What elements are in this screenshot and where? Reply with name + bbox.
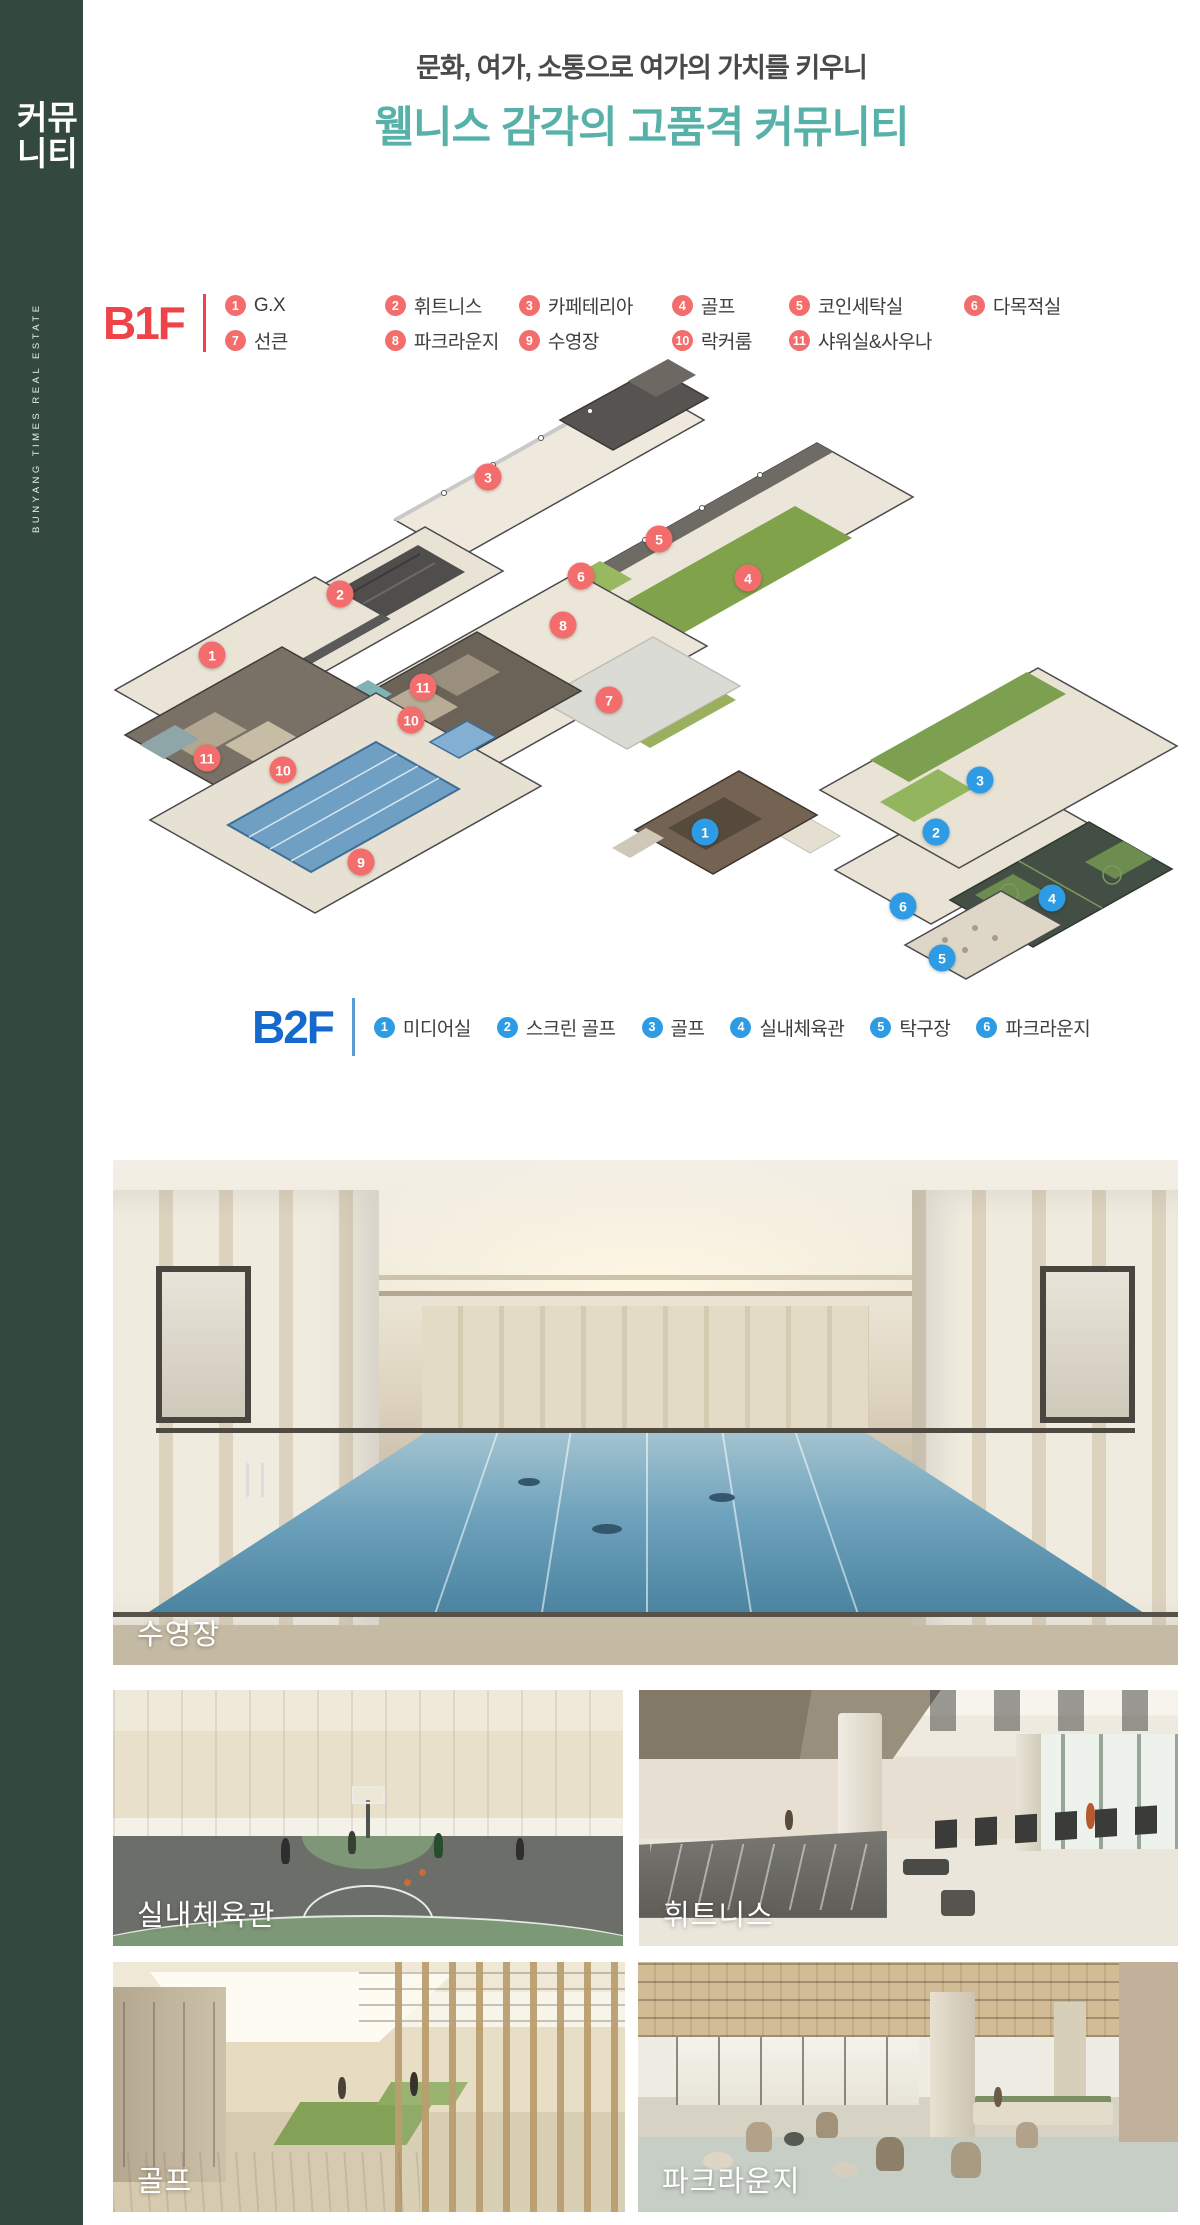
pool-far-edge bbox=[156, 1428, 1136, 1433]
fitness-wood-ceiling bbox=[639, 1690, 941, 1759]
legend-item: 5탁구장 bbox=[870, 1014, 950, 1041]
pool-left-mirror bbox=[156, 1266, 252, 1423]
pool-ladder bbox=[246, 1463, 264, 1497]
legend-item: 3골프 bbox=[642, 1014, 705, 1041]
legend-label: 파크라운지 bbox=[1005, 1014, 1090, 1041]
pool-near-edge bbox=[113, 1612, 1178, 1617]
player-figure bbox=[348, 1831, 356, 1854]
swimmer bbox=[518, 1478, 540, 1486]
plan-marker: 2 bbox=[923, 819, 950, 846]
pool-right-mirror bbox=[1040, 1266, 1136, 1423]
plan-marker: 3 bbox=[967, 767, 994, 794]
legend-item: 2스크린 골프 bbox=[497, 1014, 616, 1041]
plan-marker: 1 bbox=[199, 642, 226, 669]
weight-bench bbox=[941, 1890, 975, 1916]
legend-label: 골프 bbox=[671, 1014, 705, 1041]
legend-label: 미디어실 bbox=[403, 1014, 471, 1041]
b2f-floor-label: B2F bbox=[252, 1004, 333, 1050]
basketball bbox=[404, 1879, 411, 1886]
photo-label-indoor-gym: 실내체육관 bbox=[137, 1892, 275, 1934]
lounge-column bbox=[1054, 2002, 1086, 2117]
lounge-chair bbox=[816, 2112, 838, 2138]
lounge-chair bbox=[876, 2137, 904, 2171]
legend-number-badge: 4 bbox=[730, 1017, 751, 1038]
lounge-chair bbox=[1016, 2122, 1038, 2148]
legend-label: 실내체육관 bbox=[759, 1014, 844, 1041]
lounge-chair bbox=[951, 2142, 981, 2178]
photo-pool: 수영장 bbox=[113, 1160, 1178, 1665]
pool-back-wall bbox=[422, 1306, 869, 1432]
plan-marker: 6 bbox=[890, 893, 917, 920]
legend-number-badge: 3 bbox=[642, 1017, 663, 1038]
swimmer bbox=[592, 1524, 622, 1534]
photo-fitness: 휘트니스 bbox=[639, 1690, 1178, 1946]
photo-label-golf: 골프 bbox=[137, 2158, 192, 2200]
lounge-right-wall bbox=[1119, 1962, 1178, 2142]
lounge-pouf bbox=[832, 2162, 858, 2178]
legend-item: 4실내체육관 bbox=[730, 1014, 844, 1041]
basketball-backboard bbox=[352, 1786, 385, 1804]
person-figure bbox=[785, 1810, 793, 1830]
golf-locker-doors bbox=[123, 2002, 215, 2167]
plan-marker: 4 bbox=[735, 565, 762, 592]
lounge-table bbox=[784, 2132, 804, 2146]
plan-marker: 5 bbox=[646, 526, 673, 553]
photo-label-lounge: 파크라운지 bbox=[662, 2158, 800, 2200]
golfer-figure bbox=[410, 2072, 418, 2096]
plan-marker: 8 bbox=[550, 612, 577, 639]
lounge-column bbox=[930, 1992, 976, 2137]
plan-marker: 6 bbox=[568, 563, 595, 590]
player-figure bbox=[516, 1838, 524, 1860]
plan-marker: 10 bbox=[398, 707, 425, 734]
plan-marker: 11 bbox=[194, 745, 221, 772]
plan-marker: 10 bbox=[270, 757, 297, 784]
lounge-ceiling-beams bbox=[638, 1962, 1178, 2037]
runner-figure bbox=[1086, 1803, 1095, 1829]
fitness-ceiling-lights bbox=[930, 1690, 1178, 1731]
photo-indoor-gym: 실내체육관 bbox=[113, 1690, 623, 1946]
lounge-window-mullions bbox=[676, 2037, 919, 2105]
b2f-legend-divider bbox=[352, 998, 355, 1056]
lounge-planter bbox=[973, 2102, 1113, 2125]
photo-golf: 골프 bbox=[113, 1962, 625, 2212]
legend-item: 1미디어실 bbox=[374, 1014, 471, 1041]
plan-marker: 2 bbox=[327, 581, 354, 608]
legend-number-badge: 2 bbox=[497, 1017, 518, 1038]
weight-bench bbox=[903, 1859, 949, 1875]
lounge-chair bbox=[746, 2122, 772, 2152]
legend-item: 6파크라운지 bbox=[976, 1014, 1090, 1041]
legend-number-badge: 5 bbox=[870, 1017, 891, 1038]
legend-number-badge: 6 bbox=[976, 1017, 997, 1038]
plan-marker: 7 bbox=[596, 687, 623, 714]
legend-number-badge: 1 bbox=[374, 1017, 395, 1038]
photo-lounge: 파크라운지 bbox=[638, 1962, 1178, 2212]
legend-label: 탁구장 bbox=[899, 1014, 950, 1041]
photo-label-pool: 수영장 bbox=[137, 1611, 220, 1653]
legend-label: 스크린 골프 bbox=[526, 1014, 616, 1041]
basketball-hoop-pole bbox=[366, 1800, 370, 1838]
plan-marker: 4 bbox=[1039, 885, 1066, 912]
b2f-legend-items: 1미디어실2스크린 골프3골프4실내체육관5탁구장6파크라운지 bbox=[374, 1014, 1090, 1041]
golfer-figure bbox=[338, 2077, 346, 2099]
basketball bbox=[419, 1869, 426, 1876]
plan-marker: 1 bbox=[692, 819, 719, 846]
golf-wood-slats bbox=[395, 1962, 625, 2212]
b2f-legend: B2F 1미디어실2스크린 골프3골프4실내체육관5탁구장6파크라운지 bbox=[252, 998, 1090, 1056]
plan-marker: 9 bbox=[348, 849, 375, 876]
plan-marker: 5 bbox=[929, 945, 956, 972]
player-figure bbox=[434, 1833, 443, 1858]
plan-markers-layer: 12345678910101111123456 bbox=[0, 0, 1200, 1010]
gym-key-area bbox=[302, 1836, 435, 1869]
player-figure bbox=[281, 1838, 290, 1864]
photo-label-fitness: 휘트니스 bbox=[663, 1892, 774, 1934]
plan-marker: 3 bbox=[475, 464, 502, 491]
plan-marker: 11 bbox=[410, 674, 437, 701]
